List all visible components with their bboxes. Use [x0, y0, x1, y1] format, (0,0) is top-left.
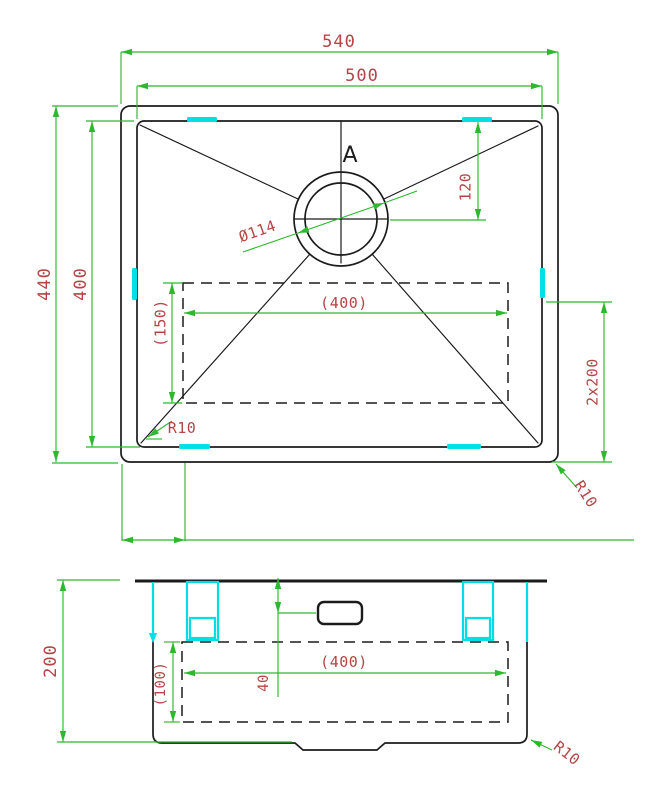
drain-hole — [294, 121, 388, 266]
projection-lines — [122, 463, 634, 541]
dim-400-label: 400 — [71, 267, 91, 301]
radius-note-front: R10 — [531, 737, 584, 769]
dim-540-label: 540 — [322, 32, 356, 52]
sink-bowl-edge — [137, 121, 542, 447]
section-marker-a: A — [342, 143, 357, 168]
dim-120-label: 120 — [456, 173, 474, 202]
front-view: 200 (100) 40 (400) R10 — [41, 578, 584, 769]
dim-recess-depth-label: (150) — [151, 299, 169, 347]
dim-400-left: 400 — [71, 121, 140, 447]
sink-outer-rim — [121, 106, 558, 462]
dim-40: 40 — [256, 578, 316, 697]
dim-500: 500 — [137, 66, 542, 119]
dim-100-label: (100) — [153, 662, 169, 707]
dim-2x200-label: 2x200 — [583, 358, 601, 406]
dim-drain-diameter: Ø114 — [236, 191, 417, 252]
dim-200: 200 — [41, 580, 292, 742]
dim-540: 540 — [121, 32, 558, 104]
radius-outer-label: R10 — [570, 477, 601, 511]
top-view: 540 500 440 400 120 — [35, 32, 612, 511]
sink-drawing-canvas: 540 500 440 400 120 — [0, 0, 664, 800]
dim-200-label: 200 — [41, 644, 61, 678]
dim-40-label: 40 — [256, 674, 272, 692]
radius-note-outer: R10 — [556, 464, 601, 511]
dim-120: 120 — [390, 122, 486, 220]
dim-recess-depth: (150) — [151, 283, 182, 403]
dim-400-bottom: (400) — [184, 653, 506, 673]
dim-recess-width: (400) — [184, 294, 507, 313]
dim-500-label: 500 — [345, 66, 379, 86]
cad-drawing-page: 540 500 440 400 120 — [0, 0, 664, 800]
mounting-clips — [149, 582, 527, 643]
overflow-hole — [318, 602, 362, 624]
radius-inner-label: R10 — [168, 419, 197, 437]
radius-front-label: R10 — [550, 737, 584, 769]
dim-440-label: 440 — [35, 267, 55, 301]
dim-100: (100) — [153, 642, 180, 722]
dim-2x200: 2x200 — [546, 302, 612, 462]
dim-400-bottom-label: (400) — [320, 653, 368, 671]
dim-recess-width-label: (400) — [320, 294, 368, 312]
